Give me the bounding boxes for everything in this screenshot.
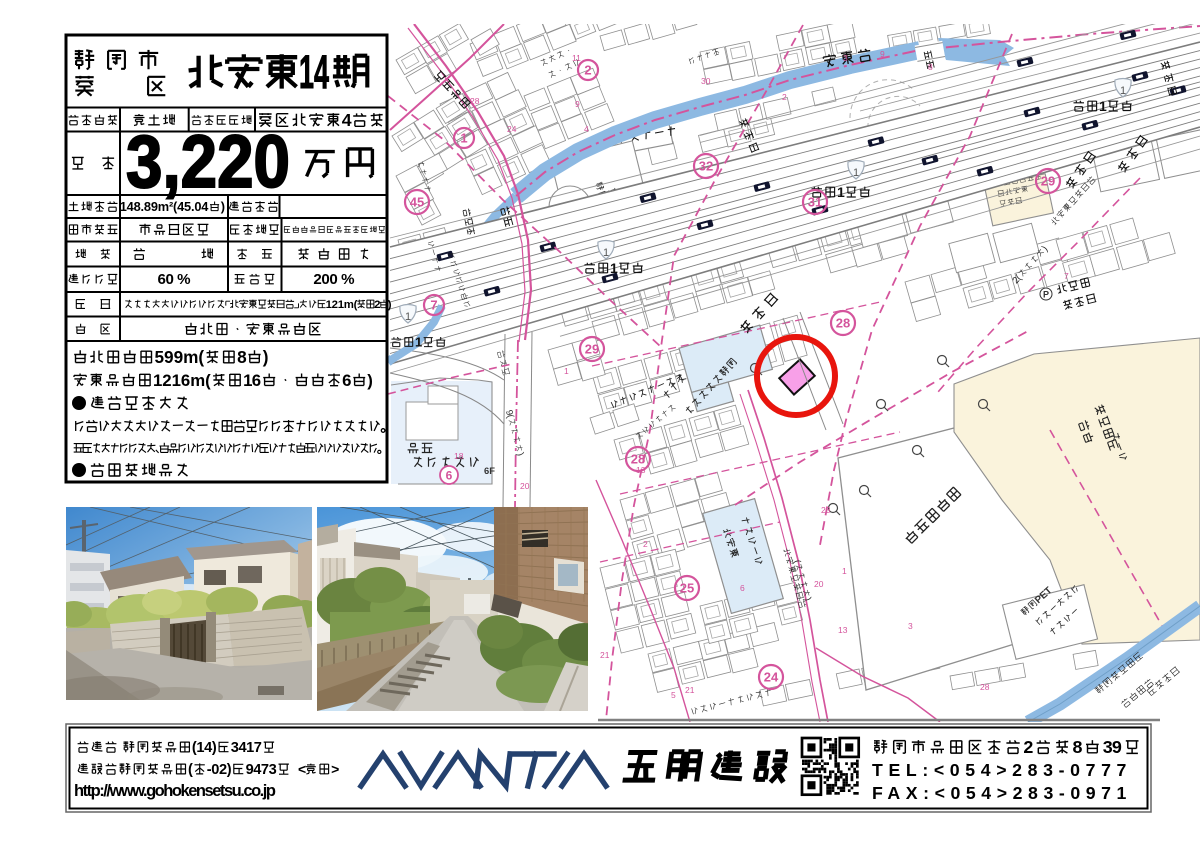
svg-text:1216m(: 1216m( (153, 371, 211, 390)
svg-text:24: 24 (764, 670, 779, 685)
svg-text:3: 3 (843, 53, 848, 63)
svg-text:1: 1 (460, 131, 467, 146)
svg-text:1: 1 (610, 260, 618, 276)
svg-text:9: 9 (575, 99, 580, 109)
svg-text:30: 30 (701, 76, 711, 86)
svg-text:18: 18 (454, 451, 464, 461)
svg-text:1: 1 (415, 335, 422, 350)
svg-text:7: 7 (1064, 271, 1069, 281)
svg-text:24: 24 (507, 124, 517, 134)
svg-text:): ) (388, 299, 392, 311)
svg-text:16: 16 (243, 371, 261, 390)
svg-text:200 %: 200 % (313, 271, 355, 288)
svg-text:31: 31 (808, 195, 822, 210)
svg-text:6: 6 (740, 583, 745, 593)
svg-text:39: 39 (1103, 737, 1122, 757)
svg-text:): ) (221, 199, 225, 214)
svg-text:148.89m²(45.04: 148.89m²(45.04 (120, 199, 210, 214)
svg-text:1: 1 (405, 311, 411, 323)
svg-text:13: 13 (838, 625, 848, 635)
svg-text:4: 4 (342, 110, 352, 130)
svg-text:6: 6 (446, 469, 453, 483)
svg-text:32: 32 (699, 159, 713, 174)
svg-text:29: 29 (1041, 174, 1055, 189)
svg-text:6: 6 (342, 371, 351, 390)
svg-text:28: 28 (980, 682, 990, 692)
svg-text:60 %: 60 % (158, 271, 192, 288)
svg-text:599m(: 599m( (155, 347, 205, 367)
svg-text:11: 11 (572, 53, 581, 63)
svg-text:20: 20 (520, 481, 530, 491)
svg-text:3: 3 (908, 621, 913, 631)
svg-text:6F: 6F (484, 465, 495, 476)
svg-text:2: 2 (374, 299, 380, 311)
svg-text:2: 2 (782, 92, 787, 102)
svg-text:3,220: 3,220 (126, 120, 290, 203)
svg-text:): ) (367, 371, 373, 390)
svg-text:>: > (331, 761, 339, 777)
svg-text:28: 28 (470, 96, 480, 106)
svg-text:P: P (1043, 290, 1049, 300)
svg-text:-02): -02) (207, 762, 232, 778)
svg-text:1: 1 (1120, 85, 1126, 97)
svg-text:8: 8 (928, 62, 933, 72)
svg-text:1: 1 (564, 366, 569, 376)
svg-text:28: 28 (631, 452, 645, 467)
svg-text:1: 1 (1099, 98, 1107, 114)
svg-text:3417: 3417 (231, 740, 262, 756)
svg-text:(: ( (188, 762, 193, 778)
svg-text:29: 29 (585, 342, 599, 357)
svg-text:25: 25 (680, 581, 694, 596)
svg-text:2: 2 (1023, 737, 1033, 757)
svg-text:1: 1 (842, 566, 847, 576)
svg-text:FAX:<054>283-0971: FAX:<054>283-0971 (872, 783, 1133, 803)
svg-text:7: 7 (430, 298, 437, 313)
svg-text:1: 1 (837, 184, 845, 200)
svg-text:8: 8 (1073, 737, 1083, 757)
svg-text:2: 2 (584, 63, 591, 78)
svg-text:14: 14 (299, 45, 329, 98)
svg-text:8: 8 (237, 347, 247, 367)
svg-text:9: 9 (880, 49, 885, 59)
svg-text:4: 4 (584, 124, 589, 134)
svg-text:21: 21 (685, 685, 695, 695)
svg-text:28: 28 (836, 316, 850, 331)
svg-text:http://www.gohokensetsu.co.jp: http://www.gohokensetsu.co.jp (74, 782, 276, 800)
svg-text:45: 45 (410, 195, 424, 210)
svg-text:23: 23 (821, 505, 831, 515)
svg-text:2: 2 (643, 539, 648, 549)
svg-text:TEL:<054>283-0777: TEL:<054>283-0777 (872, 760, 1133, 780)
svg-text:21: 21 (600, 650, 610, 660)
svg-text:(14): (14) (192, 740, 217, 756)
svg-text:1: 1 (853, 167, 859, 179)
svg-text:5: 5 (671, 690, 676, 700)
svg-text:1: 1 (603, 247, 609, 259)
svg-text:<: < (298, 761, 306, 777)
svg-text:9473: 9473 (246, 762, 277, 778)
svg-text:121m(: 121m( (326, 299, 358, 311)
svg-text:): ) (263, 347, 269, 367)
svg-text:20: 20 (814, 579, 824, 589)
